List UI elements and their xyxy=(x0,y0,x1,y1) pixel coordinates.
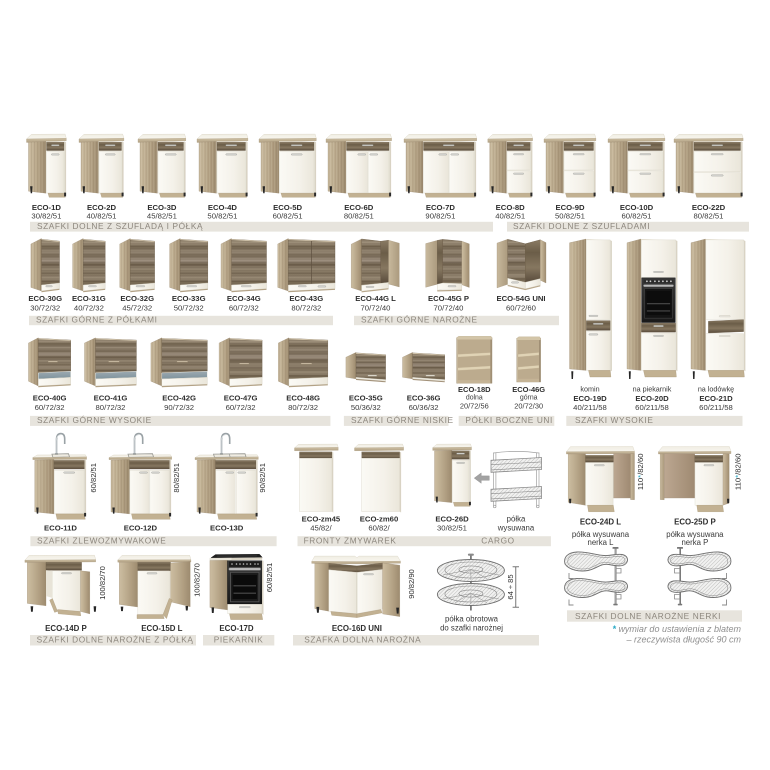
svg-text:ECO-45G P: ECO-45G P xyxy=(428,294,469,303)
svg-text:do szafki narożnej: do szafki narożnej xyxy=(440,623,503,632)
svg-text:110*/82/60: 110*/82/60 xyxy=(636,453,645,490)
svg-text:ECO-35G: ECO-35G xyxy=(349,393,383,402)
svg-text:SZAFKI GÓRNE WYSOKIE: SZAFKI GÓRNE WYSOKIE xyxy=(37,415,152,425)
svg-text:30/82/51: 30/82/51 xyxy=(437,524,467,533)
svg-text:ECO-34G: ECO-34G xyxy=(227,294,261,303)
svg-text:ECO-5D: ECO-5D xyxy=(273,203,302,212)
svg-text:ECO-zm45: ECO-zm45 xyxy=(302,515,341,524)
svg-text:70/72/40: 70/72/40 xyxy=(361,303,391,312)
svg-text:40/82/51: 40/82/51 xyxy=(495,212,525,221)
svg-text:50/82/51: 50/82/51 xyxy=(555,212,585,221)
svg-text:ECO-24D L: ECO-24D L xyxy=(580,517,621,526)
svg-text:ECO-18D: ECO-18D xyxy=(458,385,491,394)
svg-text:60/211/58: 60/211/58 xyxy=(635,403,669,412)
svg-text:ECO-22D: ECO-22D xyxy=(692,203,726,212)
svg-text:SZAFKI ZLEWOZMYWAKOWE: SZAFKI ZLEWOZMYWAKOWE xyxy=(37,535,166,545)
svg-text:ECO-40G: ECO-40G xyxy=(33,393,67,402)
svg-text:ECO-26D: ECO-26D xyxy=(435,515,469,524)
svg-text:30/82/51: 30/82/51 xyxy=(31,212,61,221)
svg-text:SZAFKI GÓRNE Z PÓŁKAMI: SZAFKI GÓRNE Z PÓŁKAMI xyxy=(36,314,158,324)
svg-text:90/72/32: 90/72/32 xyxy=(164,403,194,412)
svg-text:CARGO: CARGO xyxy=(481,535,514,545)
svg-text:70/72/40: 70/72/40 xyxy=(434,303,464,312)
svg-text:80/72/32: 80/72/32 xyxy=(291,303,321,312)
svg-text:SZAFKI DOLNE NAROŻNE Z PÓŁKĄ: SZAFKI DOLNE NAROŻNE Z PÓŁKĄ xyxy=(37,635,194,645)
svg-text:ECO-8D: ECO-8D xyxy=(496,203,525,212)
svg-text:100/82/70: 100/82/70 xyxy=(98,566,107,600)
svg-text:ECO-11D: ECO-11D xyxy=(44,523,77,532)
svg-text:ECO-6D: ECO-6D xyxy=(344,203,373,212)
svg-text:ECO-15D L: ECO-15D L xyxy=(141,624,182,633)
svg-text:20/72/56: 20/72/56 xyxy=(460,401,489,410)
svg-text:ECO-7D: ECO-7D xyxy=(426,203,455,212)
svg-text:nerka P: nerka P xyxy=(681,538,708,547)
svg-text:ECO-32G: ECO-32G xyxy=(120,294,154,303)
svg-text:ECO-21D: ECO-21D xyxy=(699,394,733,403)
svg-text:na lodówkę: na lodówkę xyxy=(698,385,734,394)
svg-text:100/82/70: 100/82/70 xyxy=(193,563,202,597)
svg-text:ECO-20D: ECO-20D xyxy=(635,394,669,403)
svg-text:80/72/32: 80/72/32 xyxy=(96,403,126,412)
svg-text:64 ÷ 85: 64 ÷ 85 xyxy=(506,574,515,599)
svg-text:SZAFKI GÓRNE NAROŻNE: SZAFKI GÓRNE NAROŻNE xyxy=(361,314,478,324)
svg-text:ECO-33G: ECO-33G xyxy=(172,294,206,303)
svg-text:90/82/51: 90/82/51 xyxy=(258,463,267,493)
svg-text:60/211/58: 60/211/58 xyxy=(699,403,733,412)
svg-text:ECO-44G L: ECO-44G L xyxy=(355,294,396,303)
svg-text:60/72/32: 60/72/32 xyxy=(229,303,259,312)
svg-text:ECO-19D: ECO-19D xyxy=(573,394,607,403)
svg-text:komin: komin xyxy=(580,385,599,394)
svg-text:ECO-zm60: ECO-zm60 xyxy=(360,515,398,524)
svg-text:ECO-16D UNI: ECO-16D UNI xyxy=(332,624,382,633)
svg-text:wysuwana: wysuwana xyxy=(497,524,535,533)
svg-text:50/36/32: 50/36/32 xyxy=(351,403,381,412)
svg-text:90/82/90: 90/82/90 xyxy=(407,569,416,599)
svg-text:90/82/51: 90/82/51 xyxy=(425,212,455,221)
svg-text:40/211/58: 40/211/58 xyxy=(573,403,607,412)
svg-text:80/82/51: 80/82/51 xyxy=(694,212,724,221)
svg-text:ECO-36G: ECO-36G xyxy=(407,393,441,402)
svg-text:ECO-31G: ECO-31G xyxy=(72,294,106,303)
svg-text:ECO-54G UNI: ECO-54G UNI xyxy=(496,294,545,303)
svg-text:SZAFKI DOLNE Z SZUFLADAMI: SZAFKI DOLNE Z SZUFLADAMI xyxy=(513,221,650,231)
svg-text:60/72/60: 60/72/60 xyxy=(506,303,536,312)
svg-text:50/82/51: 50/82/51 xyxy=(207,212,237,221)
svg-text:ECO-3D: ECO-3D xyxy=(147,203,176,212)
svg-text:ECO-1D: ECO-1D xyxy=(32,203,61,212)
svg-text:ECO-13D: ECO-13D xyxy=(210,523,244,532)
svg-text:ECO-9D: ECO-9D xyxy=(555,203,584,212)
svg-text:ECO-17D: ECO-17D xyxy=(219,624,254,633)
svg-text:60/82/51: 60/82/51 xyxy=(273,212,303,221)
svg-text:40/82/51: 40/82/51 xyxy=(87,212,117,221)
svg-text:ECO-10D: ECO-10D xyxy=(620,203,654,212)
svg-text:50/72/32: 50/72/32 xyxy=(174,303,204,312)
svg-text:SZAFKI DOLNE Z SZUFLADĄ I PÓŁK: SZAFKI DOLNE Z SZUFLADĄ I PÓŁKĄ xyxy=(37,221,203,231)
svg-text:SZAFKI WYSOKIE: SZAFKI WYSOKIE xyxy=(575,415,653,425)
svg-text:SZAFKI DOLNE NAROŻNE NERKI: SZAFKI DOLNE NAROŻNE NERKI xyxy=(575,611,721,621)
svg-text:FRONTY ZMYWAREK: FRONTY ZMYWAREK xyxy=(304,535,397,545)
svg-text:80/72/32: 80/72/32 xyxy=(288,403,318,412)
svg-text:półka obrotowa: półka obrotowa xyxy=(445,614,499,623)
svg-text:ECO-48G: ECO-48G xyxy=(286,393,320,402)
svg-text:PIEKARNIK: PIEKARNIK xyxy=(214,635,264,645)
svg-text:PÓŁKI BOCZNE UNI: PÓŁKI BOCZNE UNI xyxy=(465,415,553,425)
svg-text:* wymiar do ustawienia z blate: * wymiar do ustawienia z blatem xyxy=(612,624,741,634)
svg-text:ECO-25D P: ECO-25D P xyxy=(674,517,716,526)
svg-text:ECO-30G: ECO-30G xyxy=(28,294,62,303)
svg-text:SZAFKI GÓRNE NISKIE: SZAFKI GÓRNE NISKIE xyxy=(351,415,454,425)
svg-text:60/82/51: 60/82/51 xyxy=(622,212,652,221)
svg-text:45/72/32: 45/72/32 xyxy=(122,303,152,312)
svg-text:45/82/51: 45/82/51 xyxy=(147,212,177,221)
svg-text:30/72/32: 30/72/32 xyxy=(30,303,60,312)
svg-text:20/72/30: 20/72/30 xyxy=(514,401,543,410)
svg-text:40/72/32: 40/72/32 xyxy=(74,303,104,312)
svg-text:ECO-47G: ECO-47G xyxy=(224,393,258,402)
svg-text:60/82/: 60/82/ xyxy=(368,524,390,533)
svg-text:ECO-42G: ECO-42G xyxy=(162,393,196,402)
svg-text:na piekarnik: na piekarnik xyxy=(633,385,672,394)
svg-text:60/72/32: 60/72/32 xyxy=(226,403,256,412)
svg-text:ECO-41G: ECO-41G xyxy=(94,393,128,402)
svg-text:półka: półka xyxy=(507,515,526,524)
svg-text:ECO-46G: ECO-46G xyxy=(512,385,545,394)
svg-text:60/72/32: 60/72/32 xyxy=(35,403,65,412)
svg-text:45/82/: 45/82/ xyxy=(310,524,332,533)
svg-text:ECO-14D P: ECO-14D P xyxy=(45,624,87,633)
svg-text:SZAFKA DOLNA NAROŻNA: SZAFKA DOLNA NAROŻNA xyxy=(304,635,421,645)
svg-text:ECO-2D: ECO-2D xyxy=(87,203,116,212)
svg-text:110*/82/60: 110*/82/60 xyxy=(734,453,743,490)
svg-text:80/82/51: 80/82/51 xyxy=(172,463,181,493)
svg-text:ECO-43G: ECO-43G xyxy=(289,294,323,303)
svg-text:ECO-12D: ECO-12D xyxy=(124,523,158,532)
svg-text:60/36/32: 60/36/32 xyxy=(409,403,439,412)
svg-text:60/82/51: 60/82/51 xyxy=(265,563,274,593)
svg-text:60/82/51: 60/82/51 xyxy=(89,463,98,493)
svg-text:– rzeczywista długość 90 cm: – rzeczywista długość 90 cm xyxy=(625,634,741,644)
svg-text:ECO-4D: ECO-4D xyxy=(208,203,237,212)
svg-text:80/82/51: 80/82/51 xyxy=(344,212,374,221)
svg-text:nerka L: nerka L xyxy=(587,538,614,547)
